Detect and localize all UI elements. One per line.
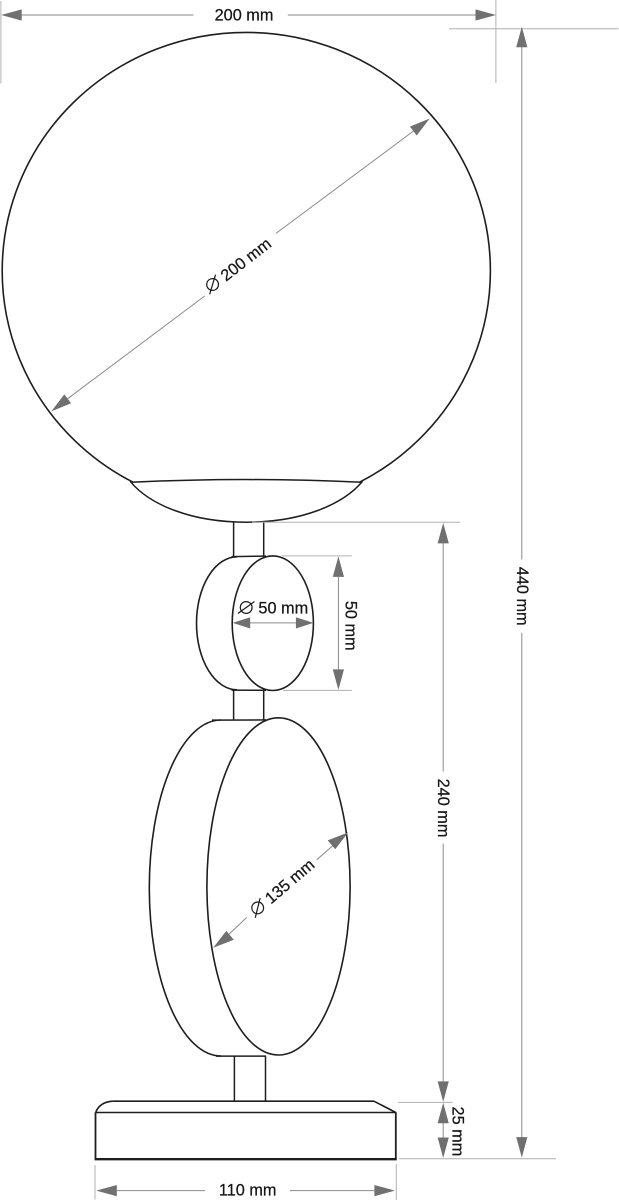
svg-text:240 mm: 240 mm	[434, 779, 452, 838]
svg-text:110 mm: 110 mm	[219, 1181, 277, 1199]
svg-text:25 mm: 25 mm	[449, 1107, 467, 1157]
svg-text:50 mm: 50 mm	[341, 601, 359, 651]
svg-text:50 mm: 50 mm	[258, 600, 308, 618]
svg-text:200 mm: 200 mm	[215, 7, 274, 25]
svg-text:440 mm: 440 mm	[513, 567, 531, 626]
